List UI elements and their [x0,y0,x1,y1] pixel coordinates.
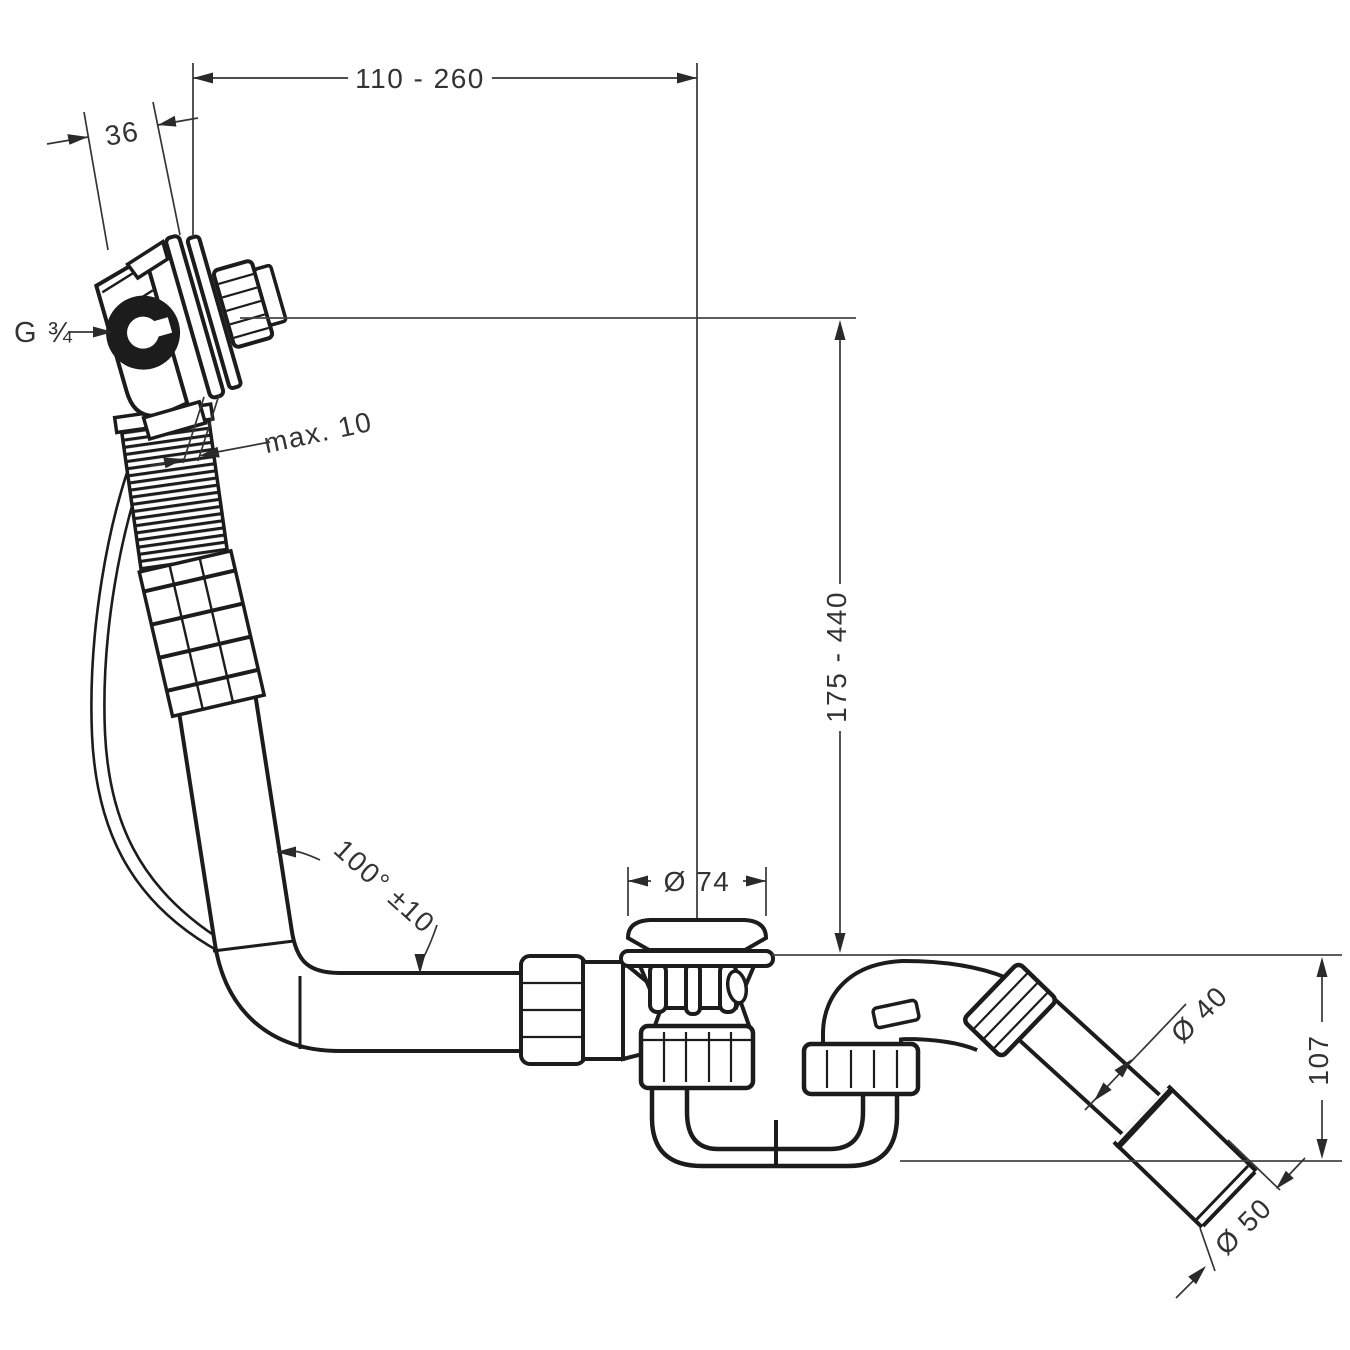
outlet-height-label: 107 [1303,1034,1334,1085]
max-gap-label: max. 10 [261,406,375,459]
thread-size-label: G ¾ [14,317,73,349]
waste-diameter-label: Ø 74 [664,866,731,897]
dimension-hose-angle: 100° ±10 [276,833,441,974]
dimension-height: 175 - 440 [821,320,852,953]
waste-flange [621,951,773,966]
hose-angle-label: 100° ±10 [328,833,441,939]
technical-drawing-page: 110 - 260 36 G ¾ max. 10 175 - 440 [0,0,1350,1350]
height-range-label: 175 - 440 [821,591,852,723]
wall-offset-label: 36 [103,115,142,151]
callout-thread: G ¾ [14,317,113,349]
trap-nut-right [804,1044,918,1094]
dimension-wall-offset: 36 [47,102,198,250]
bath-drain-overflow-dimensional-drawing: 110 - 260 36 G ¾ max. 10 175 - 440 [0,0,1350,1350]
dimension-span: 110 - 260 [193,63,697,94]
dimension-outlet-height: 107 [1303,957,1334,1159]
trap-nut-left [641,1026,753,1088]
span-range-label: 110 - 260 [355,63,485,94]
overflow-fitting [84,213,307,443]
segmented-hose [139,551,264,716]
waste-cap [628,920,766,950]
